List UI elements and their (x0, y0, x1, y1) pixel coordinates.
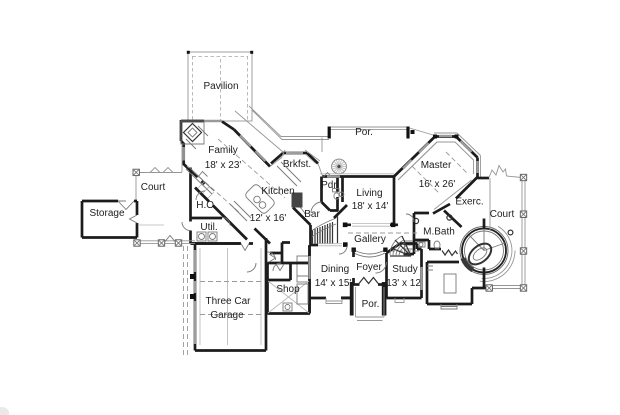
svg-text:Living: Living (356, 188, 382, 199)
svg-text:Foyer: Foyer (356, 262, 382, 273)
svg-text:H.O.: H.O. (196, 200, 217, 211)
svg-text:Master: Master (421, 160, 452, 171)
svg-text:16' x 26': 16' x 26' (419, 179, 456, 190)
svg-text:Util.: Util. (200, 222, 217, 233)
svg-text:Dining: Dining (321, 264, 349, 275)
svg-text:12' x 16': 12' x 16' (250, 213, 287, 224)
svg-text:Por.: Por. (355, 127, 373, 138)
svg-text:Shop: Shop (276, 284, 300, 295)
svg-text:Court: Court (141, 182, 166, 193)
svg-text:Pdr.: Pdr. (321, 180, 339, 191)
svg-text:Storage: Storage (89, 208, 124, 219)
svg-text:M.Bath: M.Bath (423, 227, 455, 238)
svg-text:Bar: Bar (304, 209, 320, 220)
svg-text:18' x 23': 18' x 23' (205, 160, 242, 171)
svg-text:18' x 14': 18' x 14' (352, 201, 389, 212)
svg-text:Family: Family (208, 145, 237, 156)
svg-text:13' x 12': 13' x 12' (386, 278, 423, 289)
svg-text:Study: Study (392, 264, 418, 275)
svg-text:Pavilion: Pavilion (203, 81, 238, 92)
svg-text:Exerc.: Exerc. (455, 197, 483, 208)
svg-text:Kitchen: Kitchen (261, 186, 294, 197)
svg-text:Por.: Por. (362, 299, 380, 310)
svg-text:Court: Court (490, 209, 515, 220)
svg-text:14' x 15': 14' x 15' (315, 278, 352, 289)
svg-text:Gallery: Gallery (354, 234, 386, 245)
svg-text:Garage: Garage (210, 310, 244, 321)
svg-text:Three Car: Three Car (205, 296, 251, 307)
